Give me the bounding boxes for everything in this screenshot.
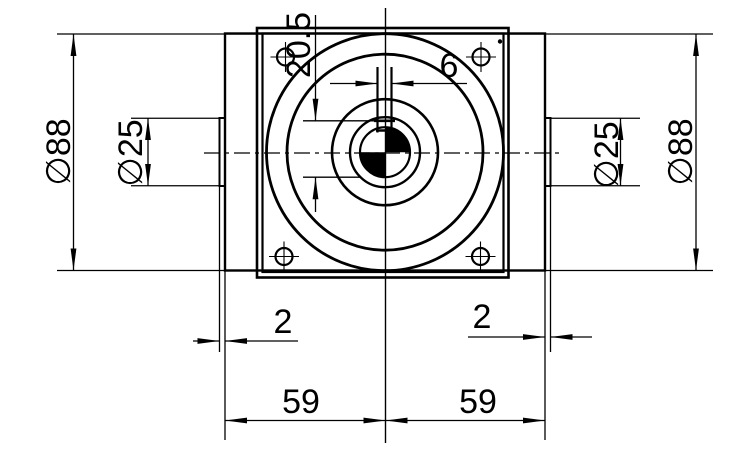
bolt-hole-bottom-left xyxy=(269,242,299,272)
dim-label-59-left: 59 xyxy=(282,383,320,421)
dimension-59-left: 59 xyxy=(225,383,386,423)
bolt-hole-top-right xyxy=(466,42,496,72)
arrowhead-up xyxy=(693,34,699,56)
dim-label-phi25-right: ∅25 xyxy=(588,121,626,188)
dim-label-phi88-left: ∅88 xyxy=(40,118,78,185)
bolt-hole-bottom-right xyxy=(466,242,496,272)
dim-label-59-right: 59 xyxy=(459,383,497,421)
small-dot xyxy=(498,39,502,43)
dim-label-keyway-width: 6 xyxy=(440,47,459,85)
dimension-phi25-left: ∅25 xyxy=(112,118,220,186)
dim-label-phi25-left: ∅25 xyxy=(112,119,150,186)
arrowhead-left xyxy=(551,334,573,340)
dimension-phi25-right: ∅25 xyxy=(551,118,641,188)
drawing-canvas: ∅88 ∅88 ∅25 ∅25 6 xyxy=(0,0,750,451)
dim-label-cap-right: 2 xyxy=(473,298,492,336)
arrowhead-right xyxy=(198,338,220,344)
arrowhead-up xyxy=(71,34,77,56)
technical-drawing: ∅88 ∅88 ∅25 ∅25 6 xyxy=(0,0,750,451)
dim-label-phi88-right: ∅88 xyxy=(662,118,700,185)
arrowhead-down xyxy=(313,99,319,121)
left-end-cap xyxy=(220,118,226,186)
arrowhead-up xyxy=(313,177,319,199)
dimension-phi88-left: ∅88 xyxy=(40,34,263,271)
arrowhead-left xyxy=(225,338,247,344)
arrowhead-down xyxy=(71,249,77,271)
dim-label-keyway-depth: 20.5 xyxy=(280,12,318,78)
arrowhead-left xyxy=(392,81,414,87)
dimension-keyway-width: 6 xyxy=(330,47,467,86)
arrowhead-right xyxy=(523,418,545,424)
arrowhead-down xyxy=(693,249,699,271)
right-end-cap xyxy=(545,118,551,186)
arrowhead-left xyxy=(225,418,247,424)
dim-label-cap-left: 2 xyxy=(274,303,293,341)
arrowhead-left xyxy=(386,418,408,424)
arrowhead-right xyxy=(364,418,386,424)
arrowhead-right xyxy=(356,81,378,87)
arrowhead-right xyxy=(523,334,545,340)
dimension-59-right: 59 xyxy=(386,383,546,423)
